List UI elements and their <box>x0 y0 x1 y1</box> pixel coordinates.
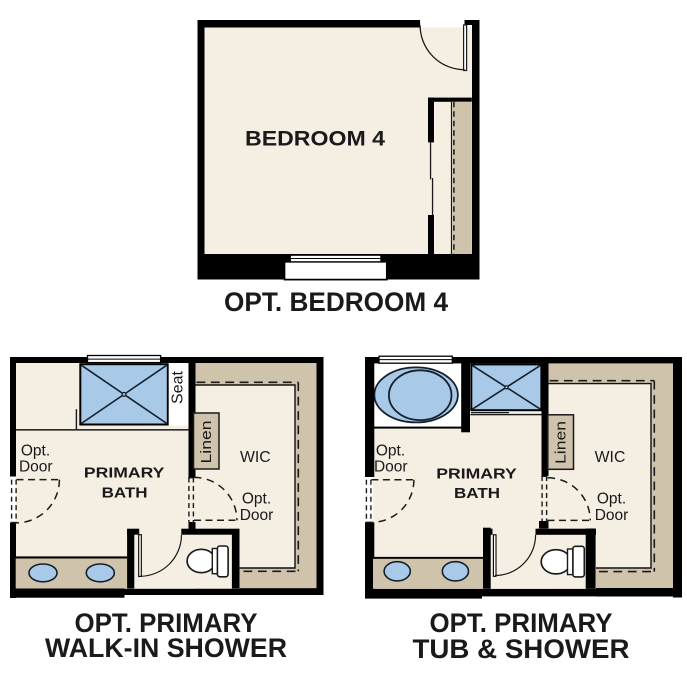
svg-text:Linen: Linen <box>198 421 215 464</box>
svg-text:Seat: Seat <box>170 370 187 403</box>
svg-text:OPT. BEDROOM 4: OPT. BEDROOM 4 <box>224 287 448 317</box>
svg-text:PRIMARY: PRIMARY <box>436 466 517 483</box>
svg-text:BEDROOM 4: BEDROOM 4 <box>245 127 385 150</box>
svg-text:Door: Door <box>374 459 408 476</box>
svg-text:WIC: WIC <box>595 449 626 466</box>
svg-text:WALK-IN SHOWER: WALK-IN SHOWER <box>45 633 287 663</box>
svg-text:BATH: BATH <box>454 485 500 502</box>
svg-text:PRIMARY: PRIMARY <box>84 465 165 482</box>
svg-text:Linen: Linen <box>553 421 570 464</box>
svg-text:Door: Door <box>595 507 629 524</box>
svg-text:Door: Door <box>240 507 274 524</box>
svg-text:Opt.: Opt. <box>597 491 626 508</box>
svg-text:TUB & SHOWER: TUB & SHOWER <box>413 634 630 664</box>
svg-text:Opt.: Opt. <box>242 491 271 508</box>
svg-text:WIC: WIC <box>240 449 271 466</box>
svg-text:Opt.: Opt. <box>21 443 50 460</box>
svg-text:Door: Door <box>19 459 53 476</box>
svg-text:Opt.: Opt. <box>376 443 405 460</box>
svg-text:BATH: BATH <box>102 485 148 502</box>
